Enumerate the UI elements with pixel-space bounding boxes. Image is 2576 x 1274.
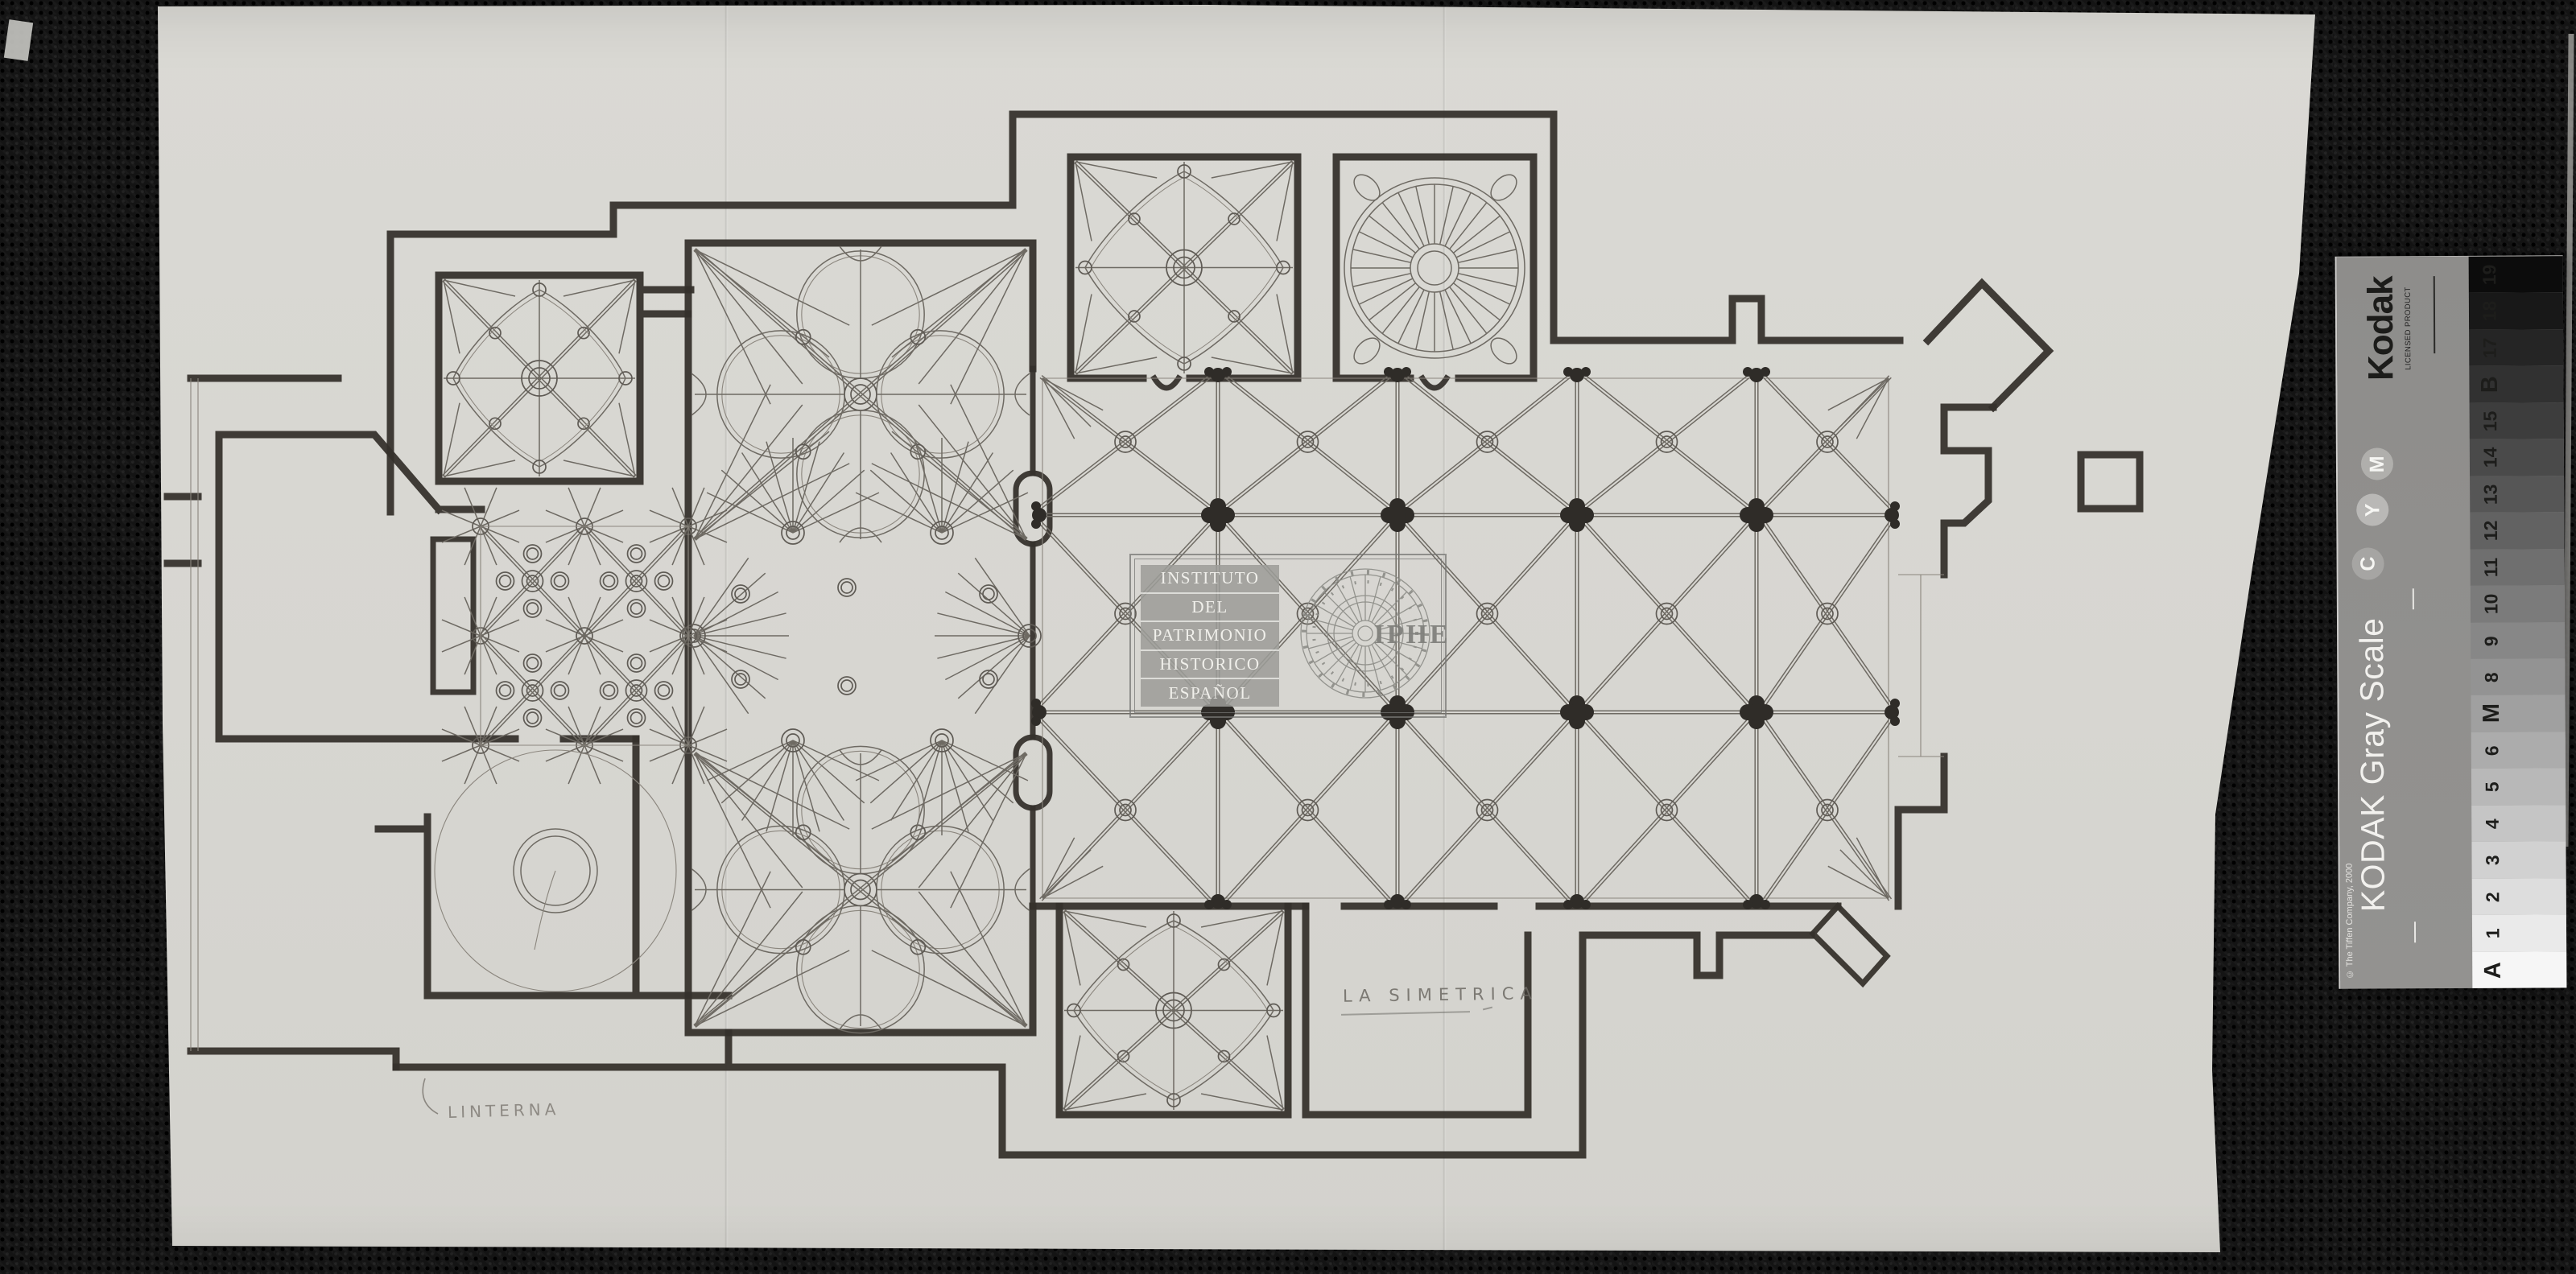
ink-circle-m: M [2361, 447, 2393, 480]
rib-boss [1298, 800, 1319, 821]
rib-boss [1482, 436, 1493, 447]
vault-rib [584, 526, 687, 635]
vault-rib [919, 249, 1026, 384]
vault-rib [1586, 376, 1749, 506]
vault-rib [1458, 274, 1516, 287]
rib-boss [841, 680, 852, 691]
vault-rib [1764, 721, 1889, 901]
title-rule-bottom [2414, 921, 2416, 942]
rib-boss [522, 680, 543, 701]
vault-rib [695, 385, 770, 539]
vault-rib [695, 405, 803, 539]
watermark-frame: INSTITUTO DEL PATRIMONIO HISTORICO ESPAÑ… [1134, 559, 1442, 713]
vault-rib [1040, 721, 1209, 901]
rib-boss [658, 575, 670, 587]
scale-label: 18 [2476, 293, 2504, 330]
vault-rib [1040, 719, 1209, 899]
annotation-la-simetrica: LA SIMETRICA [1343, 983, 1538, 1005]
watermark-rose-panel: IPHE [1285, 559, 1441, 712]
rib-boss [1302, 805, 1314, 816]
pier [1568, 703, 1586, 721]
rib-boss [1662, 608, 1673, 620]
vault-rib [1063, 910, 1282, 1109]
rib-boss [841, 582, 852, 593]
vault-rib [892, 918, 1026, 1026]
vault-rib [1586, 377, 1749, 508]
vault-rib [695, 950, 849, 1026]
vault-rib [1405, 719, 1568, 899]
rib-boss [555, 685, 566, 696]
scale-label: 6 [2479, 732, 2506, 769]
rib-boss [983, 588, 994, 600]
rib-boss [1482, 608, 1493, 620]
vault-rib [1227, 719, 1390, 899]
vault-rib [481, 526, 585, 635]
vault-rib [919, 753, 1026, 888]
stair-curl [535, 871, 555, 950]
vault-rib [1405, 721, 1568, 901]
vault-rib [480, 527, 584, 637]
rib-boss [1129, 311, 1140, 322]
wall-respond [1031, 716, 1041, 726]
vault-rib [1040, 376, 1209, 506]
vault-rib [444, 279, 636, 476]
vault-rib [1227, 376, 1390, 506]
wall-south-outer [396, 935, 1811, 1155]
vault-rib [695, 753, 770, 908]
kodak-title: KODAK Gray Scale [2353, 618, 2392, 913]
kodak-logo: Kodak [2361, 277, 2402, 381]
scale-label: 17 [2476, 330, 2504, 367]
scale-label: 4 [2479, 805, 2506, 842]
vault-rib [585, 526, 689, 635]
rib-boss [1817, 431, 1838, 452]
rib-boss [527, 685, 539, 696]
scale-label: 9 [2478, 622, 2505, 659]
rose-detail [1358, 626, 1373, 641]
vault-rib [951, 872, 1026, 1026]
vault-rib [1042, 377, 1211, 508]
vault-rib [1440, 187, 1453, 245]
vault-rib [695, 753, 849, 829]
vault-rib [1225, 376, 1389, 506]
dome-corner-oval [1349, 170, 1385, 205]
kodak-copyright-block: © The Tiffen Company, 2000 [2344, 853, 2355, 990]
vault-rib [695, 249, 803, 384]
vault-rib [919, 892, 1026, 1026]
wall-respond [1743, 367, 1752, 377]
rose-detail [1308, 637, 1352, 649]
vault-rib [695, 753, 829, 861]
detached-pillar-square [2081, 455, 2140, 509]
vault-rib [1416, 187, 1429, 245]
rib-boss [658, 685, 670, 696]
rib-boss [522, 571, 543, 592]
rib-boss [1657, 604, 1678, 625]
rib-boss [500, 685, 511, 696]
wall-respond [1031, 699, 1041, 708]
annotation-leader-arc [402, 1067, 499, 1132]
rib-boss [1298, 431, 1319, 452]
watermark-line: DEL [1141, 592, 1279, 621]
vault-rib [696, 250, 1027, 540]
wall-ne-wing [1928, 283, 2049, 407]
rib-boss [527, 658, 539, 669]
wall-respond [1761, 900, 1770, 909]
rib-boss [1662, 436, 1673, 447]
rib-boss [527, 548, 539, 559]
vault-rib [695, 872, 770, 1026]
rib-boss [1822, 436, 1833, 447]
wall-respond [1890, 699, 1900, 708]
rib-boss [735, 674, 746, 685]
vault-rib [1586, 721, 1749, 901]
scale-label: 5 [2479, 769, 2506, 806]
vault-rib [1840, 850, 1889, 898]
wall-respond [1031, 519, 1041, 529]
vault-rib [951, 753, 1026, 908]
rib-boss [631, 685, 642, 696]
rose-detail [1323, 642, 1356, 674]
vault-rib [1406, 719, 1570, 899]
rib-boss [1477, 604, 1498, 625]
vault-rib [694, 250, 1026, 540]
vault-rib [1440, 291, 1453, 349]
vault-rib [584, 637, 687, 746]
vault-rib [1406, 721, 1570, 901]
vault-rib [1416, 291, 1429, 349]
vault-rib [1063, 912, 1282, 1111]
vault-rib [1042, 378, 1091, 427]
rib-boss [1115, 800, 1136, 821]
wall-respond [1890, 519, 1900, 529]
vault-rib [1764, 719, 1889, 899]
wall-respond [1204, 900, 1214, 909]
vault-rib [1765, 719, 1891, 899]
vault-rib [1458, 249, 1516, 262]
vault-rib [1042, 376, 1211, 506]
scale-label: 15 [2477, 402, 2504, 439]
scale-label: 11 [2478, 549, 2505, 586]
dome-corner-oval [1486, 170, 1521, 205]
vault-rib [1765, 721, 1891, 901]
wall-respond [1890, 716, 1900, 726]
wall-west-boundary-stubs [167, 378, 396, 1067]
vault-rib [1406, 376, 1570, 506]
wall-respond [1222, 367, 1232, 377]
vault-rib [585, 637, 689, 746]
vault-rib [443, 281, 634, 477]
pier [1568, 506, 1586, 524]
wall-respond [1890, 501, 1900, 511]
scale-label: 14 [2477, 439, 2504, 476]
ink-letter: C [2356, 556, 2380, 571]
vault-rib [1405, 377, 1568, 508]
wall-respond [1402, 367, 1411, 377]
rib-boss [631, 658, 642, 669]
vault-rib [481, 637, 585, 746]
vault-rib [695, 918, 829, 1026]
vault-rib [872, 950, 1026, 1026]
vault-rib [1584, 376, 1748, 506]
door-cusp-chapel1 [1154, 378, 1179, 388]
wall-respond [1581, 900, 1591, 909]
vault-rib [1075, 161, 1292, 373]
wall-se-diamond-buttress [1813, 906, 1887, 983]
wall-respond [1204, 367, 1214, 377]
scale-label: B [2476, 366, 2504, 403]
vault-rib [1075, 163, 1292, 374]
vault-rib [480, 637, 584, 746]
vault-rib [1840, 378, 1889, 427]
rib-boss [1817, 604, 1838, 625]
kodak-licensed-label: LICENSED PRODUCT [2404, 287, 2413, 370]
vault-rib [1042, 719, 1211, 899]
portal-capsule-lower [1016, 737, 1050, 808]
rib-boss [1302, 436, 1314, 447]
wall-respond [1761, 367, 1770, 377]
rib-boss [604, 575, 615, 587]
rib-boss [631, 603, 642, 614]
vault-rib [1227, 721, 1390, 901]
rib-boss [1120, 805, 1131, 816]
vault-rib [1584, 524, 1748, 705]
vault-rib [1076, 163, 1294, 374]
vault-rib [695, 249, 770, 404]
vault-rib [1586, 524, 1749, 705]
rib-boss [527, 575, 539, 587]
rib-boss [626, 571, 647, 592]
rib-boss [1657, 431, 1678, 452]
vault-rib [951, 249, 1026, 404]
rib-boss [1482, 805, 1493, 816]
watermark-text-panel: INSTITUTO DEL PATRIMONIO HISTORICO ESPAÑ… [1141, 565, 1279, 707]
rib-boss [555, 575, 566, 587]
ink-letter: M [2365, 456, 2388, 472]
rib-boss [1477, 800, 1498, 821]
vault-rib [1765, 377, 1891, 508]
watermark-line: INSTITUTO [1141, 565, 1279, 592]
vault-rib [1076, 161, 1294, 373]
vault-rib [584, 635, 687, 744]
pier [1389, 506, 1406, 524]
wall-north-outer [390, 114, 1900, 512]
rib-boss [1129, 213, 1140, 225]
vault-rib [695, 892, 803, 1026]
rib-boss [1817, 800, 1838, 821]
vault-rib [721, 470, 793, 533]
wall-west-boundary-thin [191, 378, 198, 1051]
vault-rib [481, 527, 585, 637]
vault-rib [1584, 377, 1748, 508]
rib-boss [983, 674, 994, 685]
kodak-copyright: © The Tiffen Company, 2000 [2345, 864, 2355, 979]
vault-rib [695, 753, 803, 888]
kodak-brand-block: Kodak LICENSED PRODUCT [2361, 268, 2413, 389]
vault-rib [1586, 719, 1749, 899]
rib-boss [527, 712, 539, 724]
vault-rib [1225, 719, 1389, 899]
vault-rib [1764, 522, 1889, 703]
rib-boss [500, 575, 511, 587]
brand-rule [2434, 276, 2436, 353]
vault-rib [1586, 522, 1749, 703]
vault-rib [1584, 721, 1748, 901]
wall-east-lower [1898, 757, 1944, 906]
iphe-watermark: INSTITUTO DEL PATRIMONIO HISTORICO ESPAÑ… [1129, 554, 1447, 718]
pier [1748, 506, 1765, 524]
scale-label: 2 [2479, 878, 2507, 915]
vault-rib [1765, 524, 1891, 705]
scale-label: 8 [2478, 659, 2505, 696]
wall-east-upper [1944, 407, 1993, 575]
rib-boss [631, 575, 642, 587]
vault-rib [1405, 376, 1568, 506]
scale-label: M [2478, 695, 2505, 732]
rib-boss [527, 603, 539, 614]
rib-boss [631, 548, 642, 559]
vault-rib [1227, 377, 1390, 508]
rib-boss [1657, 800, 1678, 821]
vault-rib [870, 470, 942, 533]
wall-sacristy-room [1306, 906, 1528, 1115]
scale-label: 19 [2476, 257, 2504, 294]
vault-rib [1584, 719, 1748, 899]
wall-respond [1581, 367, 1591, 377]
watermark-acronym: IPHE [1374, 620, 1451, 650]
vault-rib [1065, 912, 1284, 1111]
rose-detail [1308, 618, 1352, 630]
vault-rib [1764, 376, 1889, 506]
scale-label: 10 [2478, 586, 2505, 623]
wall-respond [1563, 900, 1573, 909]
wall-respond [1563, 367, 1573, 377]
scale-label: 3 [2479, 842, 2506, 879]
wall-respond [1031, 501, 1041, 511]
rib-boss [1228, 213, 1240, 225]
watermark-line: PATRIMONIO [1141, 621, 1279, 649]
wall-respond [1384, 367, 1393, 377]
vault-rib [1042, 850, 1091, 898]
wall-respond [1384, 900, 1393, 909]
sanctuary-opening-lines [1898, 575, 1944, 757]
wall-respond [1743, 900, 1752, 909]
door-cusp-chapel2 [1422, 378, 1447, 388]
rib-boss [1822, 608, 1833, 620]
vault-rib [481, 635, 585, 744]
vault-rib [585, 527, 689, 637]
vault-rib [1040, 377, 1209, 508]
vault-rib [1764, 524, 1889, 705]
scale-label: 1 [2479, 915, 2507, 952]
pier [1209, 506, 1227, 524]
vault-rib [1065, 910, 1284, 1109]
title-rule-top [2413, 588, 2414, 609]
vault-rib [766, 740, 793, 831]
vault-rib [443, 279, 634, 476]
wall-respond [1402, 900, 1411, 909]
watermark-line: ESPAÑOL [1141, 678, 1279, 707]
dome-ring [1418, 251, 1451, 285]
scale-label: A [2479, 951, 2507, 988]
kodak-title-block: KODAK Gray Scale [2353, 609, 2392, 920]
scanned-document: LA SIMETRICA LINTERNA INSTITUTO DEL PATR… [0, 0, 2576, 1274]
vault-rib [1765, 522, 1891, 703]
ink-letter: Y [2361, 503, 2384, 517]
watermark-line: HISTORICO [1141, 649, 1279, 678]
vault-rib [1225, 721, 1389, 901]
rose-detail [1368, 576, 1381, 621]
rib-boss [1662, 805, 1673, 816]
scale-label: 12 [2477, 513, 2504, 550]
rose-detail [1368, 645, 1381, 690]
vault-rib [1584, 522, 1748, 703]
vault-rib [584, 527, 687, 637]
vault-rib [1353, 249, 1411, 262]
kodak-gray-scale-strip: Kodak LICENSED PRODUCT M Y C KODAK Gray … [2335, 255, 2567, 988]
ink-circle-c: C [2352, 547, 2384, 579]
rib-boss [851, 385, 870, 404]
vault-rib [444, 281, 636, 477]
vault-rib [1225, 377, 1389, 508]
pier [1748, 703, 1765, 721]
rib-boss [1477, 431, 1498, 452]
rib-boss [735, 588, 746, 600]
vault-rib [480, 526, 584, 635]
rose-detail [1323, 592, 1356, 624]
rib-boss [1115, 431, 1136, 452]
scale-label: 13 [2477, 476, 2504, 513]
vault-rib [892, 753, 1026, 861]
vault-rib [1406, 377, 1570, 508]
rib-boss [1228, 311, 1240, 322]
rib-boss [1822, 805, 1833, 816]
vault-rib [585, 635, 689, 744]
rib-boss [1120, 436, 1131, 447]
rib-boss [626, 680, 647, 701]
wall-respond [1222, 900, 1232, 909]
vault-rib [1353, 274, 1411, 287]
rib-boss [604, 685, 615, 696]
rib-boss [631, 712, 642, 724]
ink-circle-y: Y [2356, 493, 2388, 526]
vault-rib [480, 635, 584, 744]
